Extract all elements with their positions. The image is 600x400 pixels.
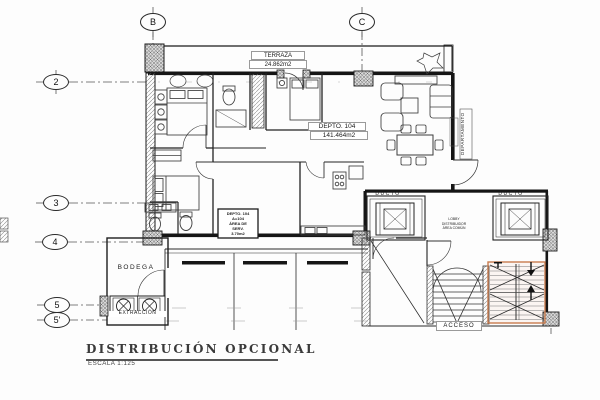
servicio-label: DEPTO. 104 A=104 ÁREA DE SERV. 3.70m2 xyxy=(218,211,258,237)
grid-row-2: 2 xyxy=(43,74,69,90)
ducto-right-label: DUCTO xyxy=(491,192,531,198)
terraza-area: 24.862m2 xyxy=(249,60,307,69)
terraza-label: TERRAZA xyxy=(251,51,305,60)
lobby-label: LOBBY DISTRIBUIDOR ÁREA COMÚN xyxy=(433,217,475,231)
acceso-label: ACCESO xyxy=(436,321,482,331)
ducto-left-label: DUCTO xyxy=(368,192,408,198)
grid-row-5: 5 xyxy=(44,297,70,313)
grid-column-b: B xyxy=(140,13,166,31)
grid-column-c: C xyxy=(349,13,375,31)
depto-area: 141.464m2 xyxy=(310,131,368,140)
vestibule xyxy=(362,238,427,326)
bodega-label: BODEGA xyxy=(107,264,165,271)
main-stair xyxy=(488,262,545,323)
extraccion-label: EXTRACCIÓN xyxy=(109,311,166,317)
parking xyxy=(165,249,368,330)
access-stair xyxy=(427,266,489,324)
drawing-title: DISTRIBUCIÓN OPCIONAL xyxy=(86,343,278,361)
grid-row-4: 4 xyxy=(42,234,68,250)
elevators xyxy=(367,196,548,266)
depto-label: DEPTO. 104 xyxy=(308,122,366,131)
departamento-label: DEPARTAMENTO xyxy=(460,110,472,158)
grid-row-3: 3 xyxy=(43,195,69,211)
grid-lines xyxy=(35,7,446,320)
grid-row-5p: 5' xyxy=(44,312,70,328)
drawing-scale: ESCALA 1:125 xyxy=(88,360,178,367)
floorplan-page: B C 2 3 4 5 5' TERRAZA 24.862m2 DEPTO. 1… xyxy=(0,0,600,400)
